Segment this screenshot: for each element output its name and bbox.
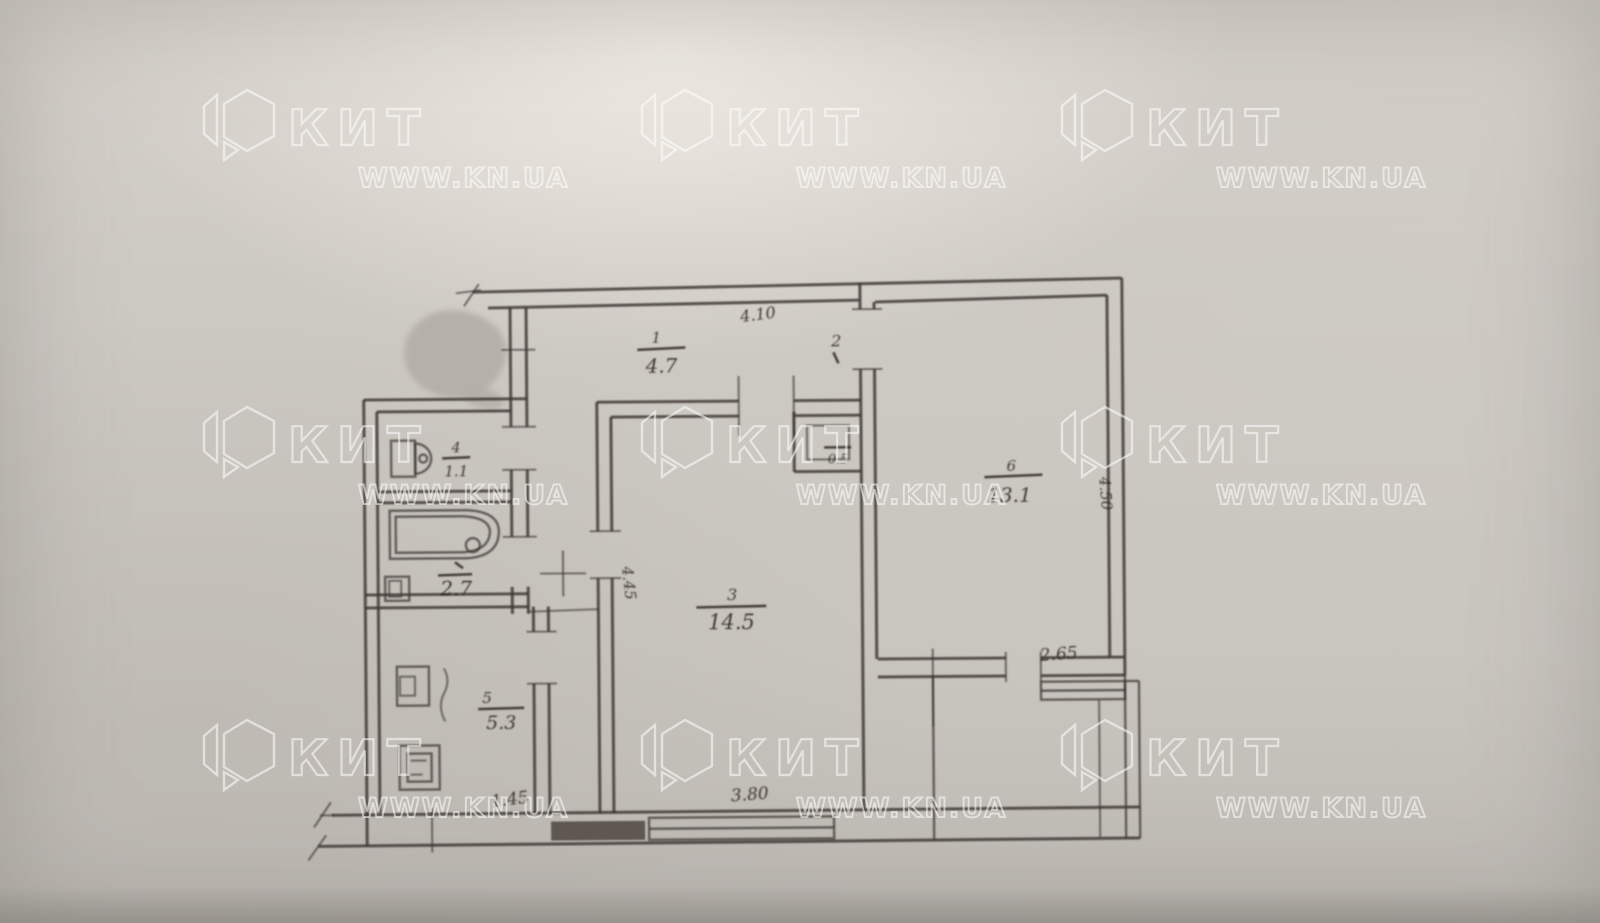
stove-icon — [399, 745, 439, 789]
bath-sink-icon — [385, 577, 409, 601]
closet-number-label: 2 — [830, 331, 841, 350]
dimension-labels: 4.10 4.50 4.45 2.65 3.80 1.45 — [486, 300, 1118, 812]
wc-area-label: 1.1 — [444, 462, 468, 480]
kitchen-sink-icon — [397, 666, 448, 721]
hall-number-label: 1 — [651, 329, 661, 347]
bedroom-area-label: 13.1 — [987, 483, 1032, 507]
kitchen-area-label: 5.3 — [486, 712, 516, 734]
dim-living-window: 3.80 — [730, 784, 769, 807]
dim-bedroom-window: 2.65 — [1038, 643, 1078, 666]
bedroom-number-label: 6 — [1006, 457, 1016, 475]
kitchen-number-label: 5 — [482, 689, 492, 707]
dim-kitchen-bottom: 1.45 — [490, 788, 530, 813]
toilet-icon — [391, 441, 431, 477]
living-area-label: 14.5 — [708, 610, 755, 634]
wc-number-label: 4 — [451, 440, 461, 456]
scanned-floorplan-page: 1 4.7 2 0.5 3 14.5 4 1.1 2.7 — [0, 0, 1600, 923]
hall-area-label: 4.7 — [644, 354, 677, 378]
floorplan-drawing: 1 4.7 2 0.5 3 14.5 4 1.1 2.7 — [0, 0, 1600, 923]
walls — [314, 278, 1140, 853]
dim-bedroom-side: 4.50 — [1095, 475, 1116, 511]
dim-living-side: 4.45 — [618, 564, 640, 600]
dim-hall-top: 4.10 — [738, 303, 777, 327]
bathtub-icon — [390, 510, 499, 559]
dimension-arrows — [304, 284, 486, 860]
closet-area-label: 0.5 — [828, 452, 849, 467]
bath-area-label: 2.7 — [439, 576, 472, 600]
living-room-window — [551, 816, 834, 840]
living-number-label: 3 — [727, 585, 737, 604]
